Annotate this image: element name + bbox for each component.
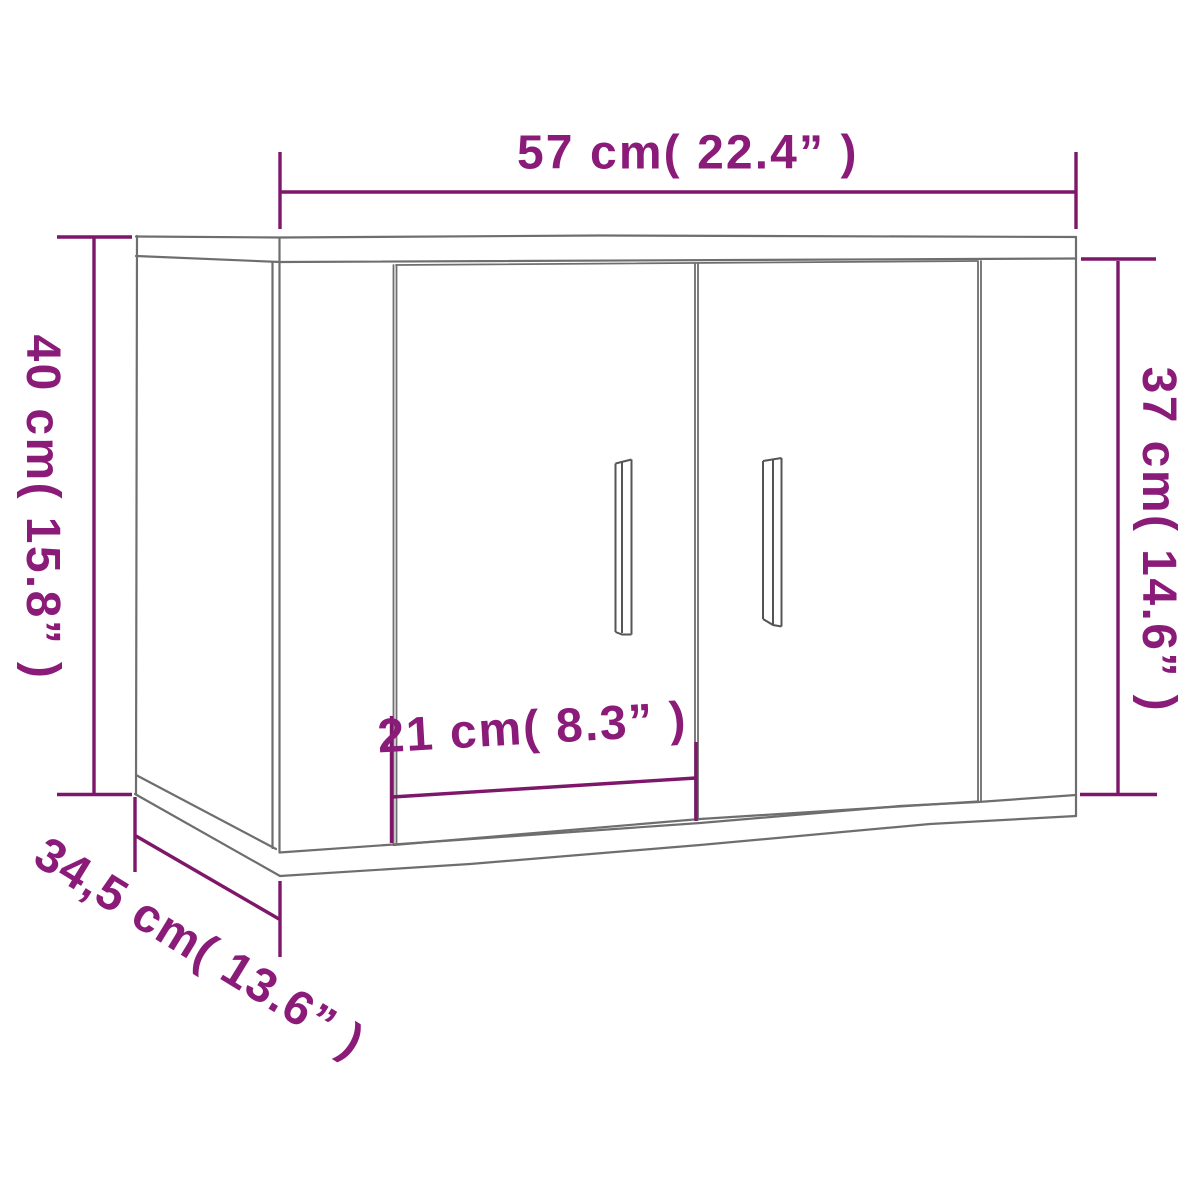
svg-text:57 cm( 22.4” ): 57 cm( 22.4” ) [517, 127, 859, 180]
svg-text:37 cm( 14.6” ): 37 cm( 14.6” ) [1132, 367, 1185, 713]
svg-text:40 cm( 15.8” ): 40 cm( 15.8” ) [16, 335, 69, 681]
